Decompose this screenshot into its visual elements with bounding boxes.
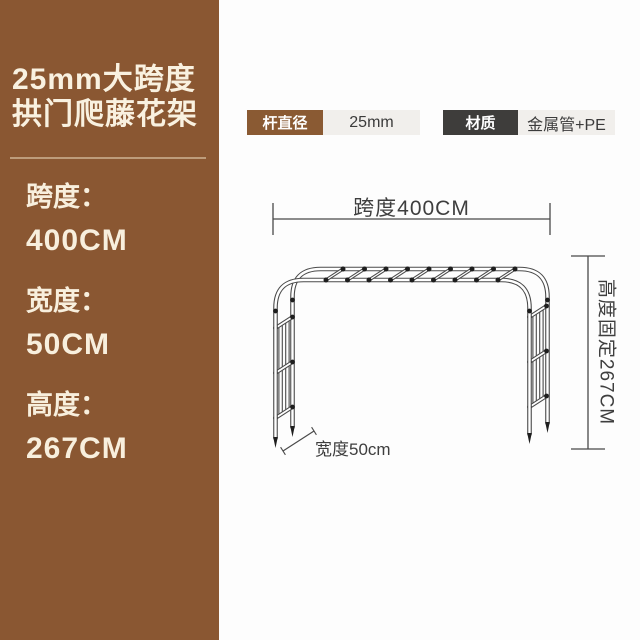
spec-label: 跨度： xyxy=(26,176,128,219)
width-dim-line xyxy=(283,431,314,451)
joint-dot xyxy=(544,394,549,399)
joint-dot xyxy=(470,267,475,272)
joint-dot xyxy=(545,298,550,303)
ground-spike xyxy=(290,426,295,437)
badge-material: 材质 金属管+PE xyxy=(443,110,615,135)
span-dimension-label: 跨度400CM xyxy=(273,192,550,222)
joint-dot xyxy=(273,309,278,314)
joint-dot xyxy=(496,278,501,283)
width-dim-tick xyxy=(281,447,286,455)
joint-dot xyxy=(324,278,329,283)
width-dim-tick xyxy=(312,427,317,435)
ground-spike xyxy=(273,437,278,448)
joint-dot xyxy=(448,267,453,272)
joint-dot xyxy=(527,309,532,314)
joint-dot xyxy=(384,267,389,272)
pipe-highlight xyxy=(530,306,547,317)
pipe-highlight xyxy=(530,351,547,362)
joint-dot xyxy=(453,278,458,283)
badge-value: 金属管+PE xyxy=(518,110,615,135)
pipe-highlight xyxy=(276,280,530,438)
joint-dot xyxy=(410,278,415,283)
product-spec-image: 25mm大跨度 拱门爬藤花架 跨度： 400CM 宽度： 50CM 高度： 26… xyxy=(0,0,640,640)
spec-item-height: 高度： 267CM xyxy=(26,384,128,471)
pipe-highlight xyxy=(276,407,293,418)
pipe-highlight xyxy=(293,269,548,427)
spec-value: 50CM xyxy=(26,323,128,367)
pipe xyxy=(293,269,548,427)
joint-dot xyxy=(427,267,432,272)
pipe xyxy=(276,280,530,438)
joint-dot xyxy=(544,304,549,309)
joint-dot xyxy=(341,267,346,272)
spec-value: 400CM xyxy=(26,219,128,263)
joint-dot xyxy=(367,278,372,283)
ground-spike xyxy=(527,433,532,444)
spec-value: 267CM xyxy=(26,427,128,471)
joint-dot xyxy=(345,278,350,283)
badge-value: 25mm xyxy=(323,110,420,135)
joint-dot xyxy=(544,349,549,354)
spec-item-width: 宽度： 50CM xyxy=(26,280,128,367)
spec-label: 高度： xyxy=(26,384,128,427)
arch-diagram: 跨度400CM 高度固定267CM 宽度50cm xyxy=(230,180,640,480)
spec-label: 宽度： xyxy=(26,280,128,323)
joint-dot xyxy=(474,278,479,283)
joint-dot xyxy=(290,315,295,320)
ground-spike xyxy=(545,422,550,433)
pipe-highlight xyxy=(530,396,547,407)
title-divider xyxy=(10,157,206,159)
joint-dot xyxy=(290,360,295,365)
spec-list: 跨度： 400CM 宽度： 50CM 高度： 267CM xyxy=(26,176,128,488)
joint-dot xyxy=(362,267,367,272)
joint-dot xyxy=(513,267,518,272)
sidebar: 25mm大跨度 拱门爬藤花架 跨度： 400CM 宽度： 50CM 高度： 26… xyxy=(0,0,219,640)
joint-dot xyxy=(431,278,436,283)
joint-dot xyxy=(405,267,410,272)
joint-dot xyxy=(491,267,496,272)
joint-dot xyxy=(388,278,393,283)
badge-label: 杆直径 xyxy=(247,110,323,135)
badge-label: 材质 xyxy=(443,110,518,135)
product-title-line2: 拱门爬藤花架 xyxy=(12,97,198,132)
arch-line-drawing xyxy=(230,180,640,480)
badge-rod-diameter: 杆直径 25mm xyxy=(247,110,420,135)
pipe-highlight xyxy=(276,317,293,328)
spec-item-span: 跨度： 400CM xyxy=(26,176,128,263)
joint-dot xyxy=(290,298,295,303)
pipe-highlight xyxy=(276,362,293,373)
product-title: 25mm大跨度 拱门爬藤花架 xyxy=(12,62,198,132)
joint-dot xyxy=(290,405,295,410)
height-dimension-label: 高度固定267CM xyxy=(600,256,622,449)
product-title-line1: 25mm大跨度 xyxy=(12,62,198,97)
width-dimension-label: 宽度50cm xyxy=(315,435,391,460)
